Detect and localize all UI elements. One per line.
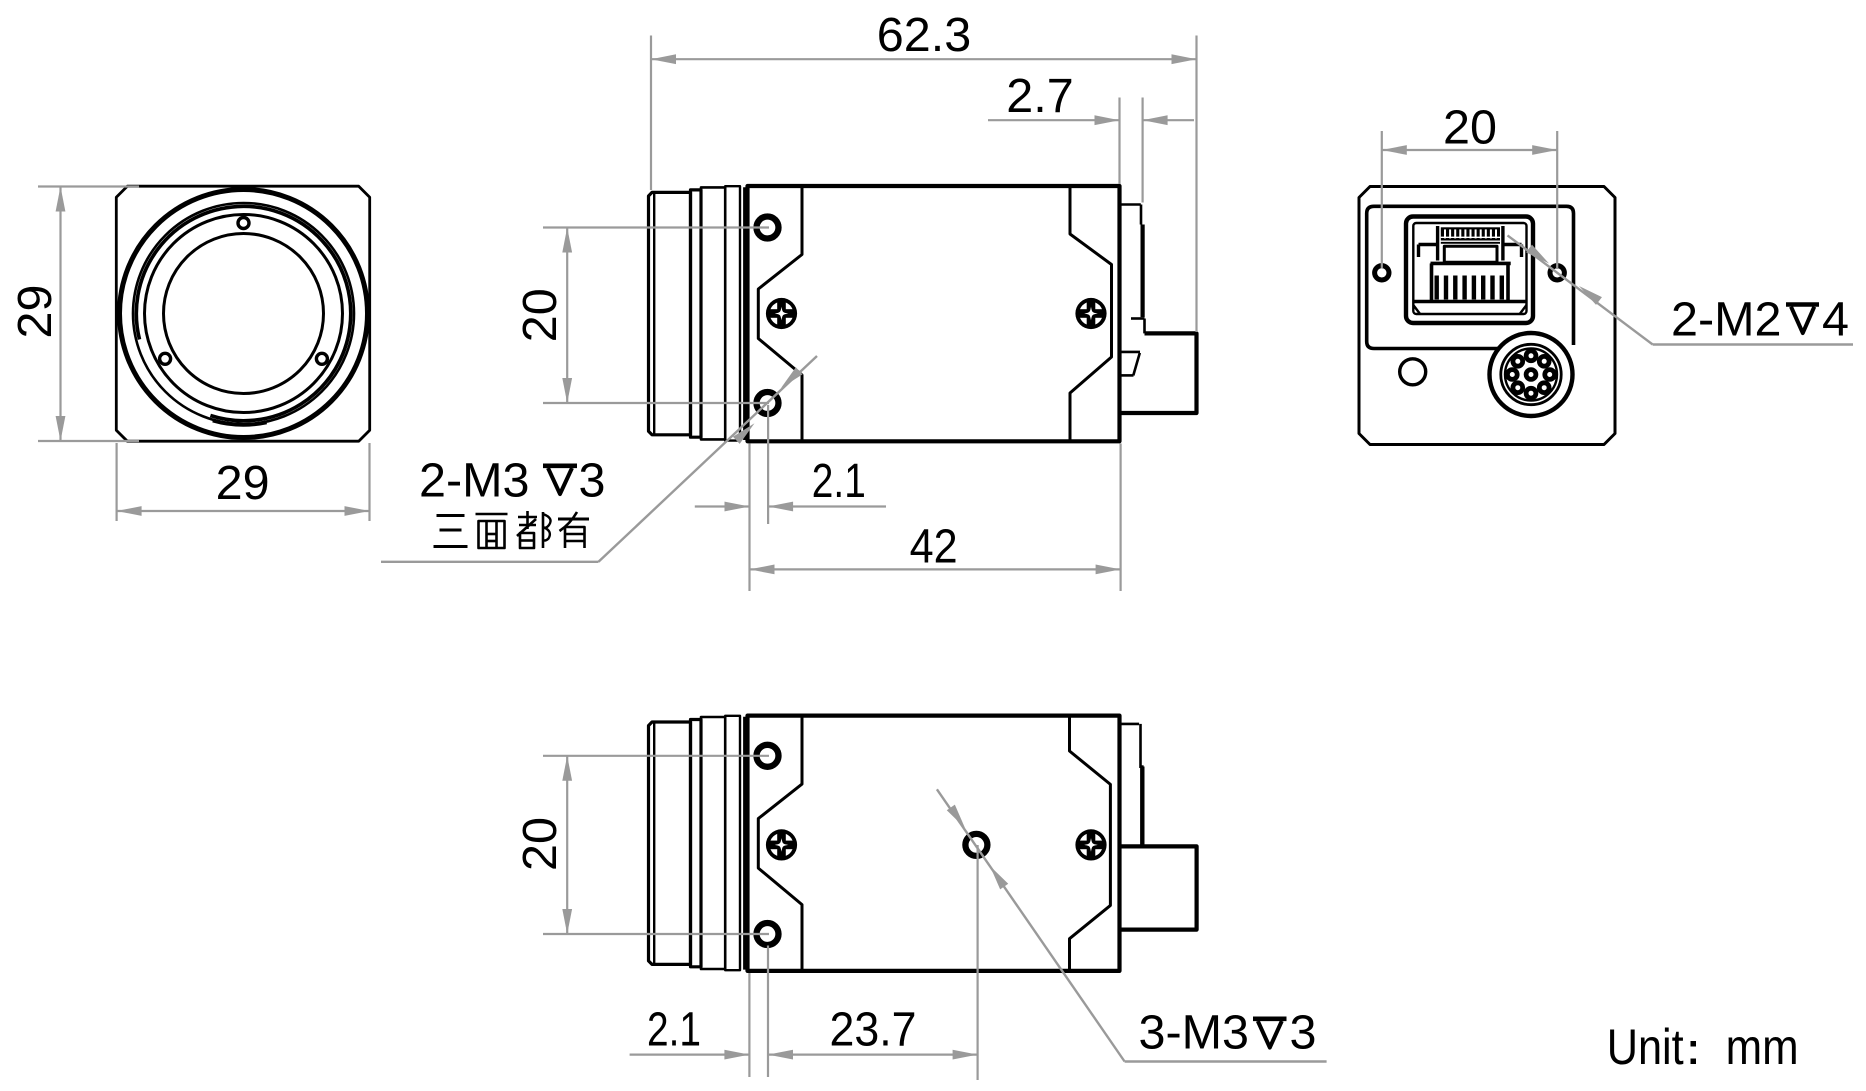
svg-text:mm: mm: [1726, 1019, 1799, 1075]
svg-text:3: 3: [1290, 1006, 1317, 1060]
svg-text:29: 29: [216, 456, 270, 510]
svg-text:42: 42: [910, 520, 958, 574]
svg-text:Unit: Unit: [1607, 1019, 1684, 1075]
svg-text:62.3: 62.3: [877, 8, 971, 62]
svg-text:4: 4: [1822, 293, 1849, 347]
svg-text:2.1: 2.1: [647, 1003, 701, 1057]
svg-text:2.7: 2.7: [1006, 69, 1073, 123]
svg-text:20: 20: [513, 288, 567, 342]
svg-text:29: 29: [8, 285, 62, 339]
svg-text:23.7: 23.7: [830, 1003, 917, 1057]
svg-text:3: 3: [579, 453, 606, 507]
svg-text:20: 20: [513, 817, 567, 871]
svg-text:2.1: 2.1: [812, 454, 866, 508]
svg-text:2-M2: 2-M2: [1671, 293, 1782, 347]
svg-text:2-M3: 2-M3: [419, 453, 530, 507]
svg-text:20: 20: [1443, 101, 1497, 155]
svg-text:3-M3: 3-M3: [1139, 1006, 1250, 1060]
